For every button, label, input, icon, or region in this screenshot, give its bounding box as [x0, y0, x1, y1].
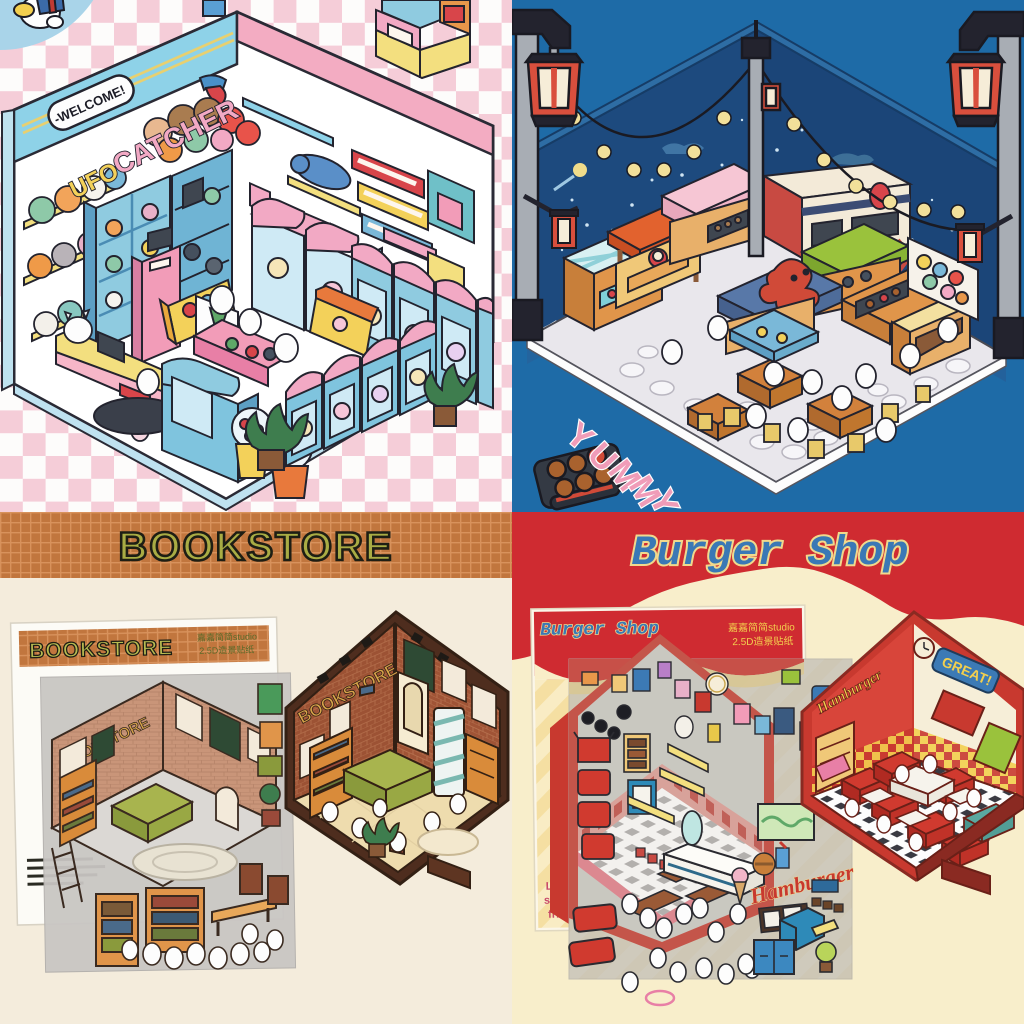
svg-text:2.5D造景贴纸: 2.5D造景贴纸: [732, 634, 793, 648]
svg-text:2.5D造景贴纸: 2.5D造景贴纸: [199, 644, 254, 656]
svg-text:BOOKSTORE: BOOKSTORE: [118, 525, 393, 569]
svg-text:BOOKSTORE: BOOKSTORE: [29, 636, 173, 662]
svg-text:Burger Shop: Burger Shop: [540, 619, 659, 641]
svg-text:Burger Shop: Burger Shop: [631, 529, 908, 577]
svg-text:嘉嘉简简studio: 嘉嘉简简studio: [728, 620, 795, 634]
svg-text:嘉嘉简简studio: 嘉嘉简简studio: [197, 631, 257, 643]
